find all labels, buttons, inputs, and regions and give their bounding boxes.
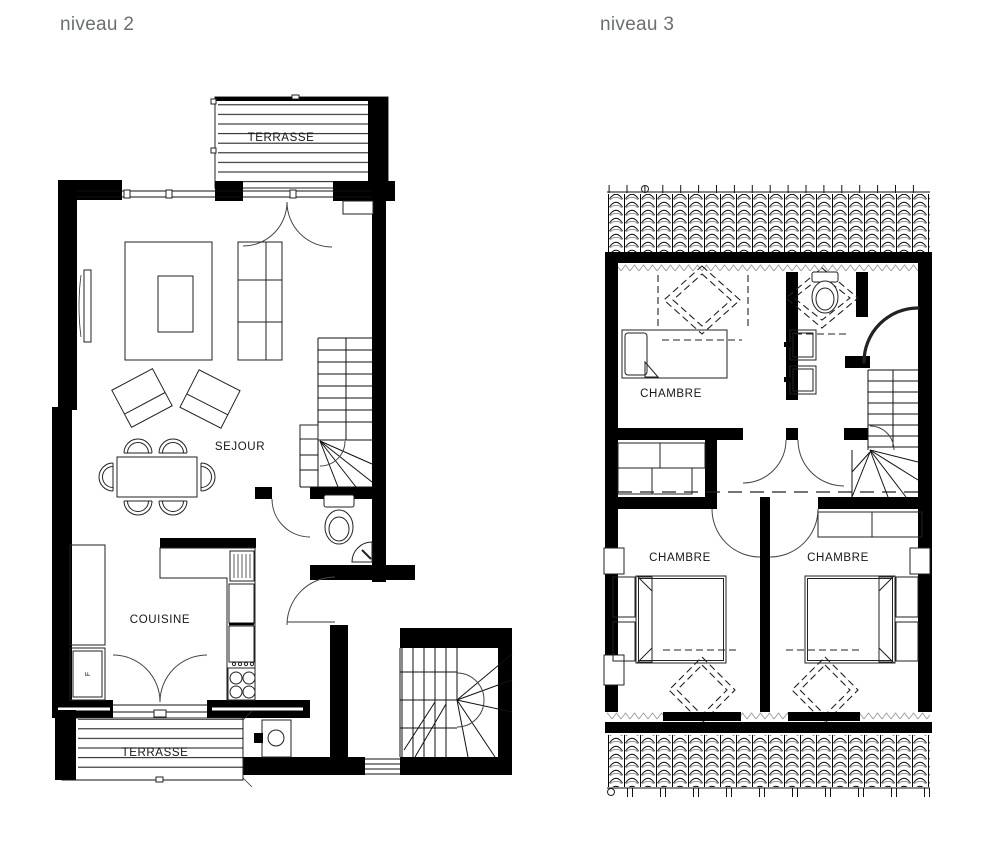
door-arc <box>798 440 844 486</box>
bedroom-top: CHAMBRE <box>622 266 748 400</box>
terrace-bottom: TERRASSE <box>55 710 252 787</box>
armchair <box>112 369 172 428</box>
sejour-room: SEJOUR <box>79 242 282 515</box>
skylight <box>658 266 748 340</box>
room-label-sejour: SEJOUR <box>215 441 265 453</box>
floorplan-niveau-2: TERRASSE <box>52 95 512 787</box>
wc-room <box>272 495 372 562</box>
armchair <box>180 370 240 428</box>
room-label-terrasse-bottom: TERRASSE <box>122 747 189 759</box>
radiator <box>79 270 91 342</box>
corner-sink <box>352 542 372 562</box>
kitchen-cupboard <box>70 545 105 645</box>
room-label-terrasse-top: TERRASSE <box>248 132 315 144</box>
kitchen-room: F <box>70 545 255 717</box>
entry-threshold <box>365 759 400 774</box>
roof-top <box>605 185 932 271</box>
bathroom <box>784 268 918 394</box>
boiler <box>254 720 291 757</box>
toilet <box>812 272 838 313</box>
double-bed <box>805 576 895 663</box>
fridge: F <box>70 648 105 700</box>
walls-niveau-2 <box>52 180 415 775</box>
single-bed <box>622 330 727 378</box>
closet <box>618 443 705 494</box>
roof-bottom <box>605 712 932 797</box>
terrace-double-door <box>113 655 207 717</box>
dining-table <box>99 439 215 515</box>
stove <box>228 662 255 700</box>
bedroom-bottom-left: CHAMBRE <box>613 552 740 723</box>
fridge-label: F <box>85 672 92 676</box>
nightstand <box>896 622 918 661</box>
sofa <box>238 242 282 360</box>
kitchen-sink <box>230 551 254 581</box>
coffee-table <box>158 276 193 332</box>
floorplan-drawing: TERRASSE <box>0 0 988 862</box>
bedroom-bottom-right: CHAMBRE <box>786 512 922 723</box>
stairs-internal <box>300 338 372 487</box>
nightstand <box>896 577 918 617</box>
dresser <box>818 512 922 537</box>
door-arc <box>712 509 760 557</box>
french-door <box>243 202 332 247</box>
room-label-couisine: COUISINE <box>130 614 190 626</box>
stairs-common <box>365 628 512 775</box>
room-label-chambre-left: CHAMBRE <box>649 552 711 564</box>
door-arc <box>770 509 818 557</box>
room-label-chambre-top: CHAMBRE <box>640 388 702 400</box>
floorplan-sheet: niveau 2 niveau 3 <box>0 0 988 862</box>
floorplan-niveau-3: CHAMBRE <box>604 185 932 797</box>
door-arc <box>743 440 786 483</box>
toilet <box>324 495 354 544</box>
curved-door <box>864 308 918 362</box>
entry-door <box>287 577 335 625</box>
terrace-top: TERRASSE <box>211 95 388 188</box>
room-label-chambre-right: CHAMBRE <box>807 552 869 564</box>
